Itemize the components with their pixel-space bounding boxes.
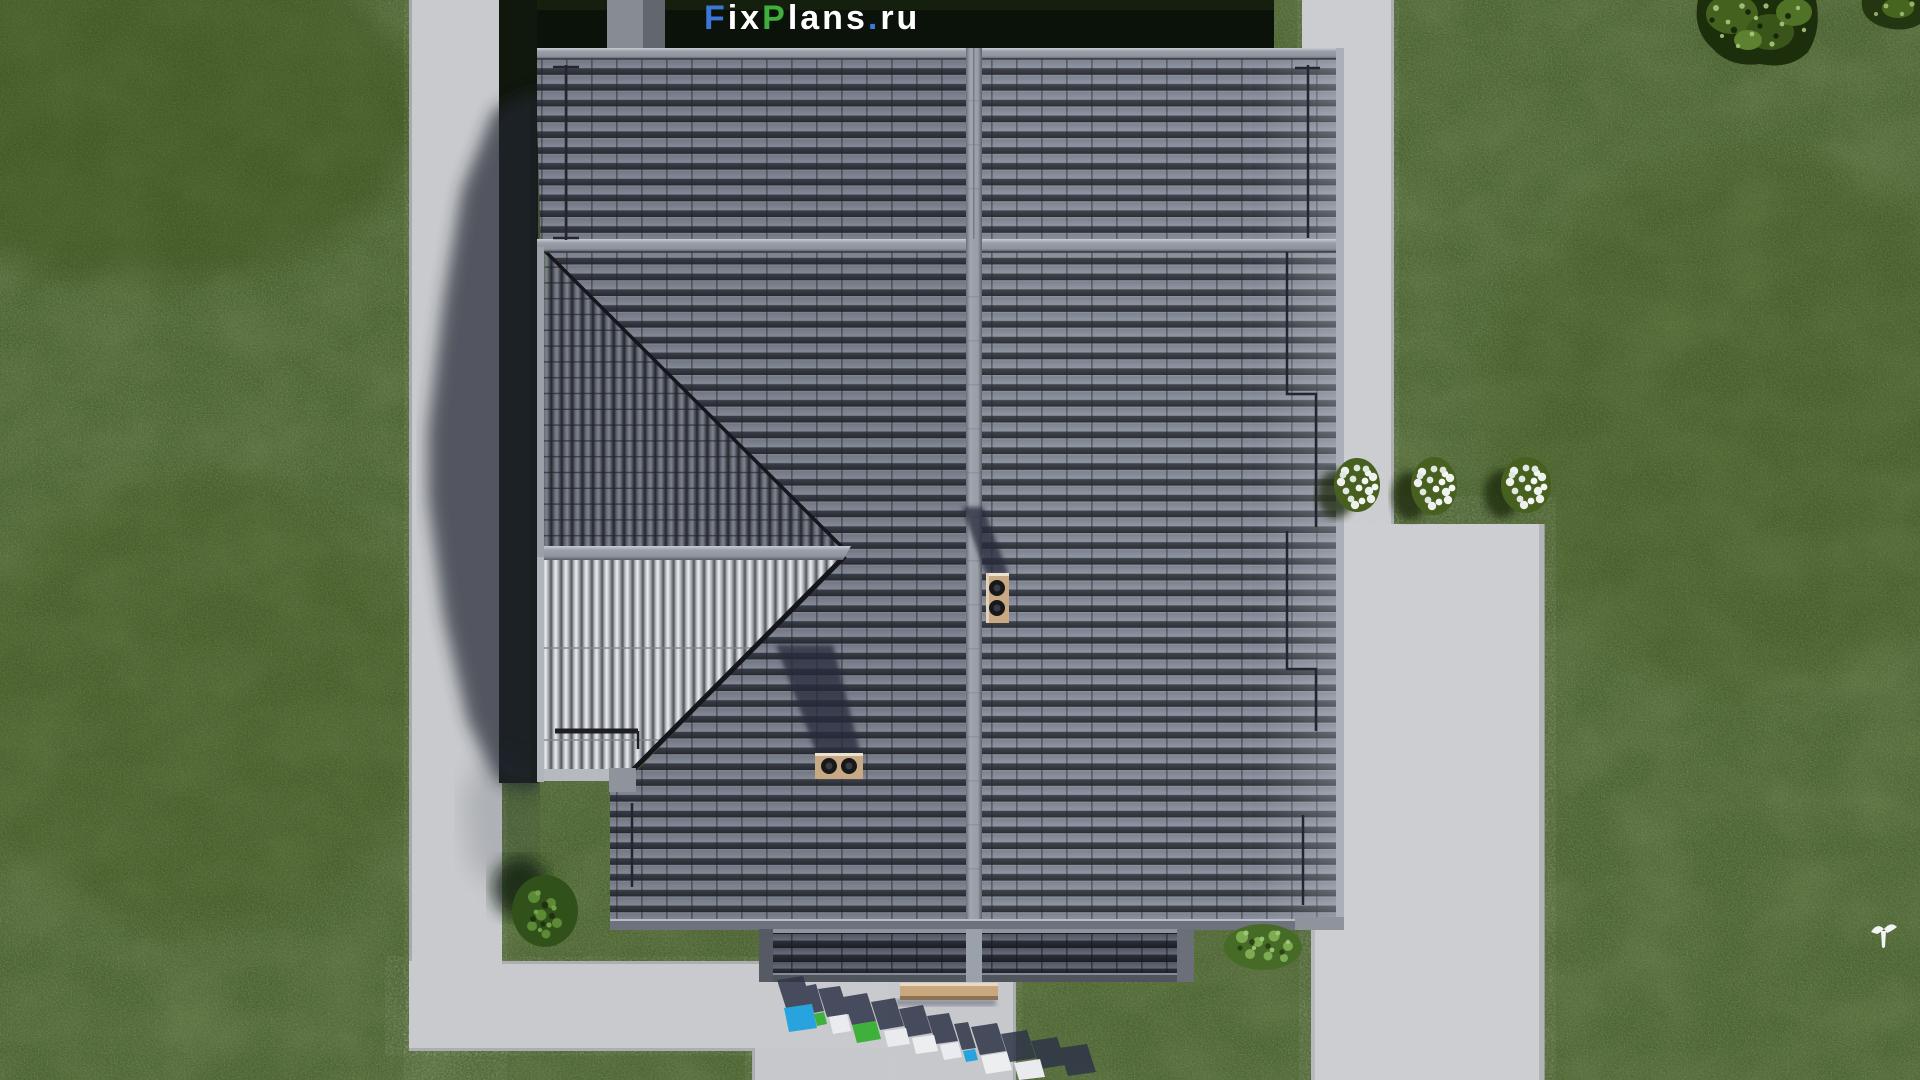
svg-text:FixPlans.ru: FixPlans.ru xyxy=(704,0,920,37)
